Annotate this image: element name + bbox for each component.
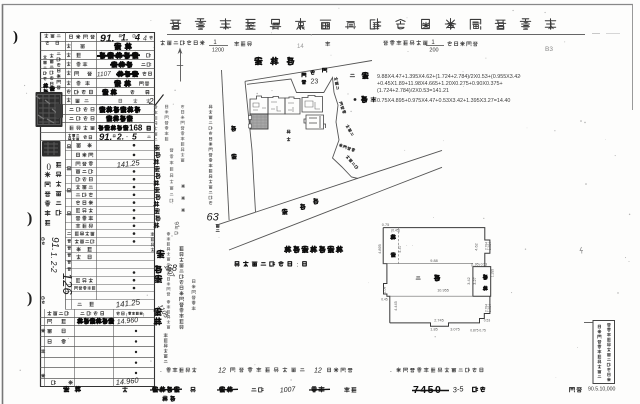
svg-text:1200: 1200 bbox=[212, 48, 224, 54]
svg-text:10.955: 10.955 bbox=[437, 289, 449, 293]
svg-text:0.53: 0.53 bbox=[484, 319, 491, 323]
svg-text:0: 0 bbox=[47, 162, 52, 172]
svg-text:(1.95) 0.53: (1.95) 0.53 bbox=[471, 262, 488, 266]
svg-text:2-2: 2-2 bbox=[49, 260, 58, 273]
svg-text:9.88: 9.88 bbox=[430, 259, 437, 263]
svg-text:9.88X4.47+1.395X4.62+(1.724+2.: 9.88X4.47+1.395X4.62+(1.724+2.784)/2X0.5… bbox=[377, 74, 520, 80]
svg-text:1007: 1007 bbox=[280, 386, 297, 394]
svg-text:1.85: 1.85 bbox=[430, 328, 437, 332]
svg-text:4.47: 4.47 bbox=[398, 245, 402, 252]
svg-text:3.27: 3.27 bbox=[473, 277, 477, 284]
svg-text:1.: 1. bbox=[49, 252, 58, 259]
svg-text:90.5.10,000: 90.5.10,000 bbox=[588, 387, 616, 393]
svg-text:0.875 0.75: 0.875 0.75 bbox=[470, 329, 486, 333]
svg-text:1.08: 1.08 bbox=[382, 287, 386, 294]
svg-text:3.42: 3.42 bbox=[467, 277, 471, 284]
svg-text:91.: 91. bbox=[100, 33, 115, 45]
svg-text:): ) bbox=[13, 29, 18, 45]
svg-text:1107: 1107 bbox=[97, 71, 112, 79]
svg-text:1.: 1. bbox=[121, 33, 129, 43]
svg-text:23: 23 bbox=[311, 79, 319, 86]
svg-text:+0.45X1.89+11.98X4.665+1.20X0.: +0.45X1.89+11.98X4.665+1.20X0.275+0.90X0… bbox=[377, 81, 503, 87]
svg-text:5: 5 bbox=[132, 131, 137, 141]
svg-text:0.75: 0.75 bbox=[382, 223, 389, 227]
svg-text:91.: 91. bbox=[99, 132, 112, 143]
svg-text:14: 14 bbox=[297, 44, 304, 50]
svg-text:12: 12 bbox=[218, 368, 226, 375]
svg-text:2: 2 bbox=[148, 97, 154, 106]
svg-text:4.62: 4.62 bbox=[475, 243, 479, 250]
svg-text:3-5: 3-5 bbox=[452, 384, 465, 395]
svg-text:12: 12 bbox=[314, 368, 322, 375]
svg-text:2.: 2. bbox=[116, 131, 124, 141]
svg-text::: : bbox=[297, 262, 299, 269]
svg-text:B3: B3 bbox=[545, 46, 553, 53]
svg-text:68: 68 bbox=[167, 263, 177, 273]
svg-text:1.724: 1.724 bbox=[488, 242, 492, 250]
svg-text:1.724: 1.724 bbox=[488, 304, 492, 312]
svg-text:91.: 91. bbox=[49, 237, 60, 251]
svg-text:): ) bbox=[27, 210, 32, 227]
svg-text:0.45: 0.45 bbox=[381, 298, 388, 302]
svg-text:1.395: 1.395 bbox=[491, 269, 495, 277]
svg-text:): ) bbox=[27, 290, 32, 307]
svg-text:200: 200 bbox=[429, 48, 438, 54]
svg-text:63: 63 bbox=[207, 212, 220, 224]
svg-text:4.895: 4.895 bbox=[378, 244, 382, 254]
svg-text:(0.45): (0.45) bbox=[391, 229, 400, 233]
svg-text:4.445: 4.445 bbox=[394, 301, 398, 311]
svg-text:3.075: 3.075 bbox=[450, 328, 460, 332]
svg-text:0.75X4.895+0.975X4.47+0.53X3.4: 0.75X4.895+0.975X4.47+0.53X3.42+1.395X3.… bbox=[377, 98, 510, 104]
svg-text:-: - bbox=[126, 135, 128, 141]
svg-text:4: 4 bbox=[143, 36, 147, 43]
svg-text:(1.724+2.784)/2X0.53=141.21: (1.724+2.784)/2X0.53=141.21 bbox=[377, 88, 449, 94]
svg-text:2.745: 2.745 bbox=[434, 318, 444, 322]
svg-text:126: 126 bbox=[60, 273, 75, 295]
